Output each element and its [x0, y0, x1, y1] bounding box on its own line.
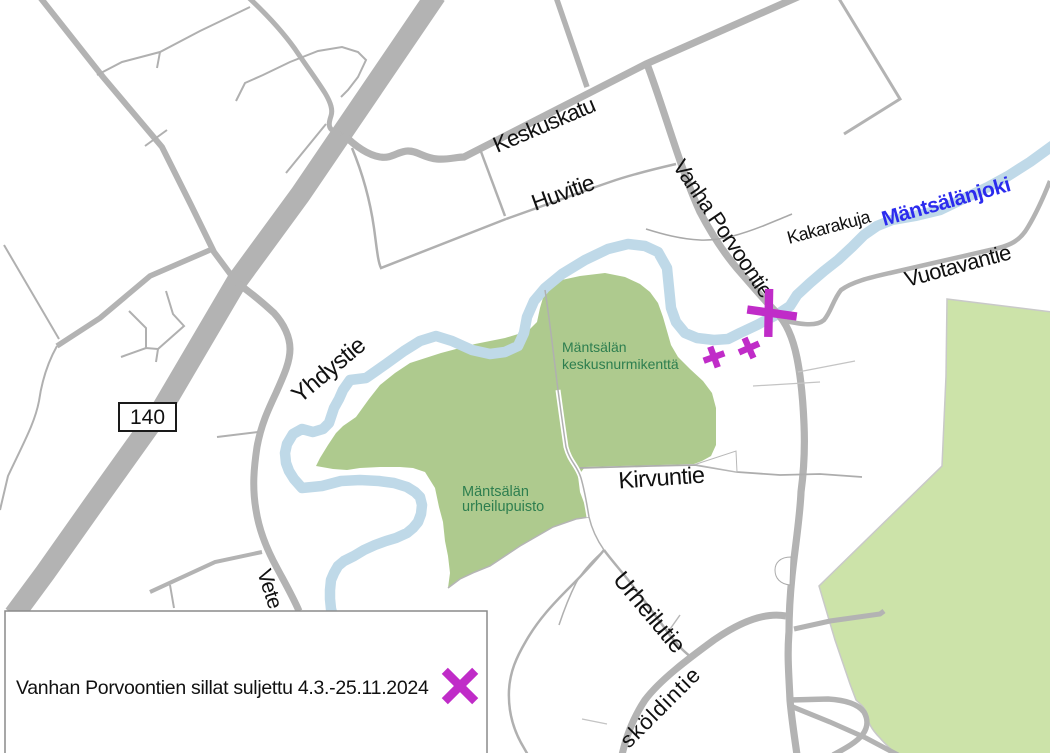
svg-text:Mäntsälän: Mäntsälän: [462, 484, 529, 500]
svg-text:Mäntsälän: Mäntsälän: [562, 339, 627, 355]
svg-text:140: 140: [130, 406, 165, 429]
svg-text:urheilupuisto: urheilupuisto: [462, 499, 544, 515]
svg-text:Vanhan Porvoontien sillat sulj: Vanhan Porvoontien sillat suljettu 4.3.-…: [16, 677, 429, 699]
svg-text:keskusnurmikenttä: keskusnurmikenttä: [562, 356, 679, 372]
